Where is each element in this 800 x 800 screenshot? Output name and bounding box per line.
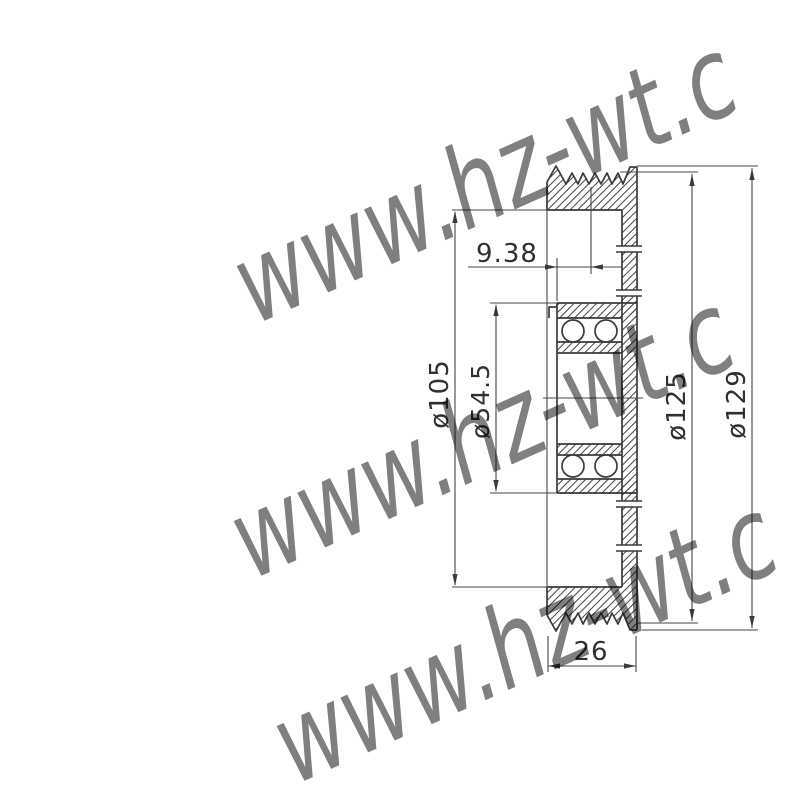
web-hole (616, 246, 642, 252)
drawing-canvas: 9.38 ø105 ø54.5 ø125 ø129 26 www.hz-wt.c… (0, 0, 800, 800)
web-hole (616, 501, 642, 507)
technical-drawing: 9.38 ø105 ø54.5 ø125 ø129 26 www.hz-wt.c… (0, 0, 800, 800)
bearing-ball (595, 455, 617, 477)
outer-race-bottom (557, 479, 637, 494)
